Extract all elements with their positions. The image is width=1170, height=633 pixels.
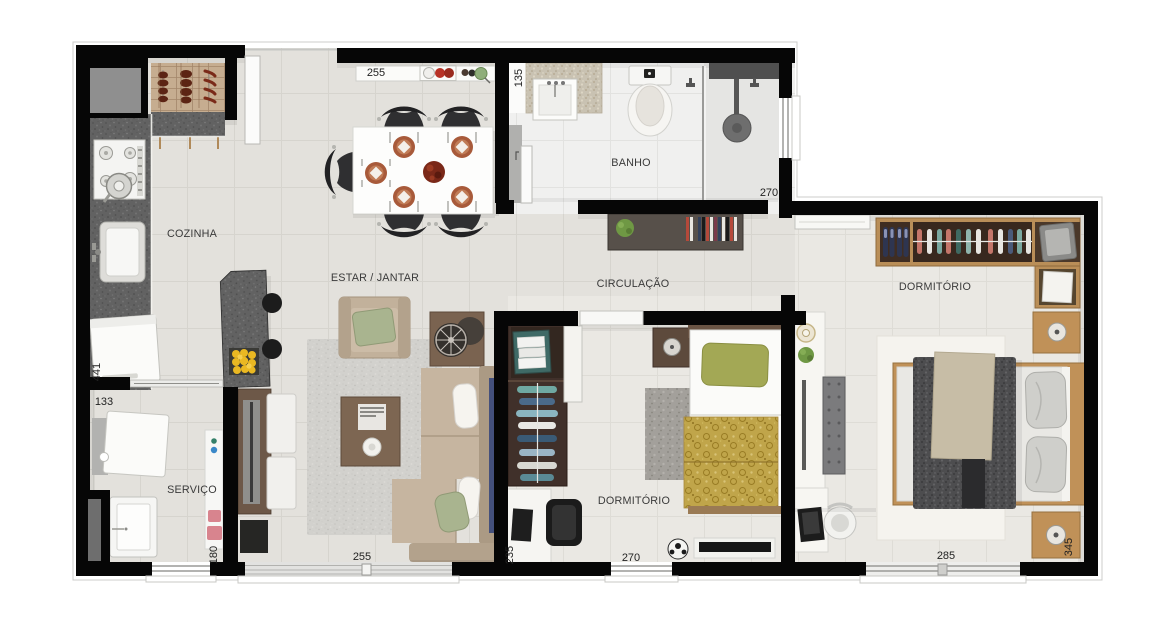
svg-text:135: 135 <box>513 69 525 87</box>
svg-text:ESTAR / JANTAR: ESTAR / JANTAR <box>331 272 419 284</box>
svg-text:285: 285 <box>937 550 955 562</box>
svg-text:270: 270 <box>760 187 778 199</box>
svg-text:SERVIÇO: SERVIÇO <box>167 484 217 496</box>
svg-text:255: 255 <box>367 67 385 79</box>
svg-text:COZINHA: COZINHA <box>167 228 218 240</box>
svg-text:235: 235 <box>504 546 516 564</box>
svg-text:133: 133 <box>95 396 113 408</box>
svg-text:DORMITÓRIO: DORMITÓRIO <box>598 494 670 507</box>
svg-text:BANHO: BANHO <box>611 157 650 169</box>
svg-text:180: 180 <box>208 546 220 564</box>
svg-text:CIRCULAÇÃO: CIRCULAÇÃO <box>597 277 670 290</box>
svg-text:DORMITÓRIO: DORMITÓRIO <box>899 280 971 293</box>
svg-text:270: 270 <box>622 552 640 564</box>
svg-text:255: 255 <box>353 551 371 563</box>
svg-text:345: 345 <box>1063 538 1075 556</box>
svg-text:441: 441 <box>91 363 103 381</box>
